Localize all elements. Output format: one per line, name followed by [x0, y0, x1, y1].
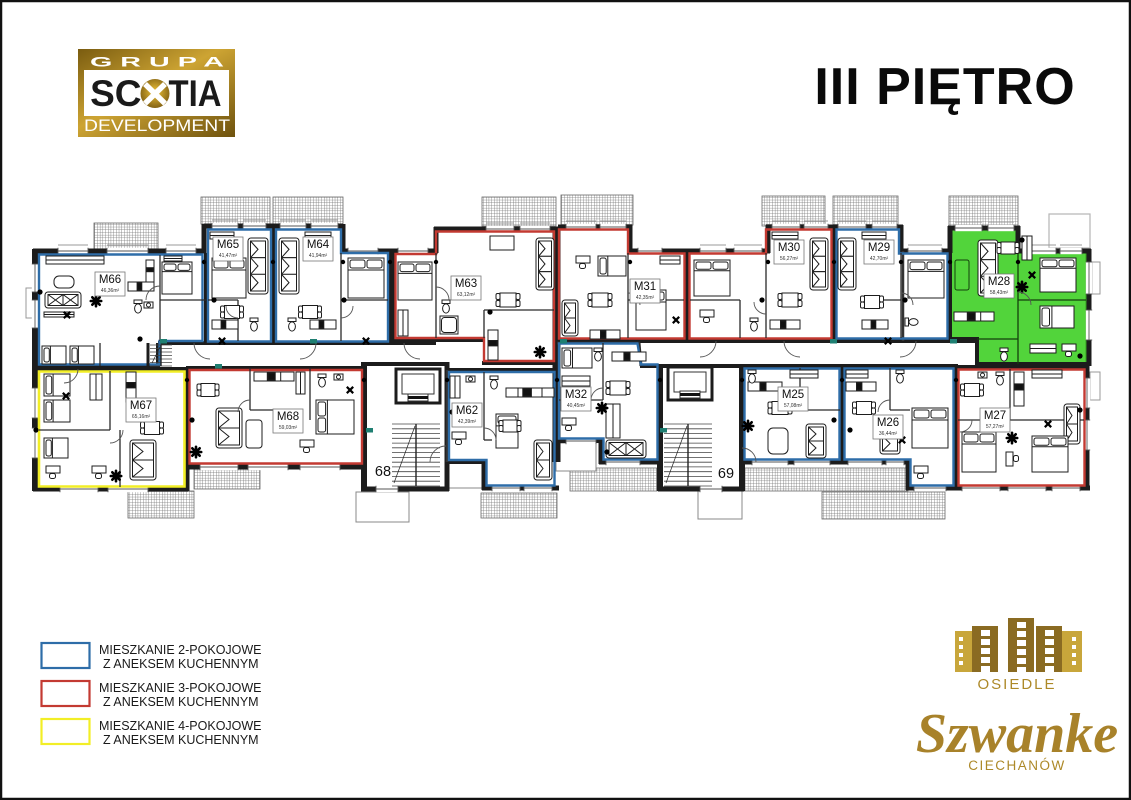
svg-text:M66: M66 [99, 274, 121, 286]
svg-text:41,94m²: 41,94m² [309, 253, 328, 259]
svg-text:Z ANEKSEM KUCHENNYM: Z ANEKSEM KUCHENNYM [103, 733, 259, 747]
svg-text:TIA: TIA [169, 73, 222, 114]
svg-text:40,45m²: 40,45m² [567, 403, 586, 409]
svg-text:57,08m²: 57,08m² [784, 403, 803, 409]
svg-text:59,03m²: 59,03m² [279, 425, 298, 431]
svg-text:69: 69 [718, 466, 734, 482]
svg-text:M68: M68 [277, 411, 299, 423]
svg-text:Szwanke: Szwanke [916, 703, 1118, 765]
svg-text:OSIEDLE: OSIEDLE [977, 676, 1056, 693]
svg-text:CIECHANÓW: CIECHANÓW [968, 758, 1066, 773]
svg-text:41,47m²: 41,47m² [219, 253, 238, 259]
svg-text:Z ANEKSEM KUCHENNYM: Z ANEKSEM KUCHENNYM [103, 657, 259, 671]
svg-text:M62: M62 [456, 405, 478, 417]
svg-text:G R U P A: G R U P A [90, 55, 225, 70]
svg-text:42,70m²: 42,70m² [870, 256, 889, 262]
svg-text:MIESZKANIE 3-POKOJOWE: MIESZKANIE 3-POKOJOWE [99, 681, 262, 695]
svg-text:57,27m²: 57,27m² [986, 424, 1005, 430]
svg-text:56,27m²: 56,27m² [780, 256, 799, 262]
svg-text:M25: M25 [782, 389, 804, 401]
svg-text:M32: M32 [565, 389, 587, 401]
svg-text:III PIĘTRO: III PIĘTRO [814, 58, 1075, 116]
svg-text:58,43m²: 58,43m² [990, 290, 1009, 296]
svg-text:M31: M31 [634, 281, 656, 293]
svg-text:46,36m²: 46,36m² [101, 288, 120, 294]
svg-text:M64: M64 [307, 239, 330, 251]
svg-text:42,35m²: 42,35m² [636, 295, 655, 301]
svg-text:Z ANEKSEM KUCHENNYM: Z ANEKSEM KUCHENNYM [103, 695, 259, 709]
svg-text:MIESZKANIE 2-POKOJOWE: MIESZKANIE 2-POKOJOWE [99, 643, 262, 657]
svg-text:M67: M67 [130, 400, 152, 412]
svg-text:M26: M26 [877, 417, 899, 429]
svg-text:M27: M27 [984, 410, 1006, 422]
svg-text:65,16m²: 65,16m² [132, 414, 151, 420]
svg-text:M63: M63 [455, 278, 477, 290]
svg-text:M29: M29 [868, 242, 890, 254]
svg-text:MIESZKANIE 4-POKOJOWE: MIESZKANIE 4-POKOJOWE [99, 719, 262, 733]
svg-text:SC: SC [90, 73, 141, 114]
svg-text:M30: M30 [778, 242, 800, 254]
svg-text:68: 68 [375, 464, 391, 480]
svg-text:M28: M28 [988, 276, 1010, 288]
svg-text:63,12m²: 63,12m² [457, 292, 476, 298]
svg-text:M65: M65 [217, 239, 239, 251]
svg-text:36,44m²: 36,44m² [879, 431, 898, 437]
svg-text:42,39m²: 42,39m² [458, 419, 477, 425]
svg-text:DEVELOPMENT: DEVELOPMENT [84, 117, 230, 135]
